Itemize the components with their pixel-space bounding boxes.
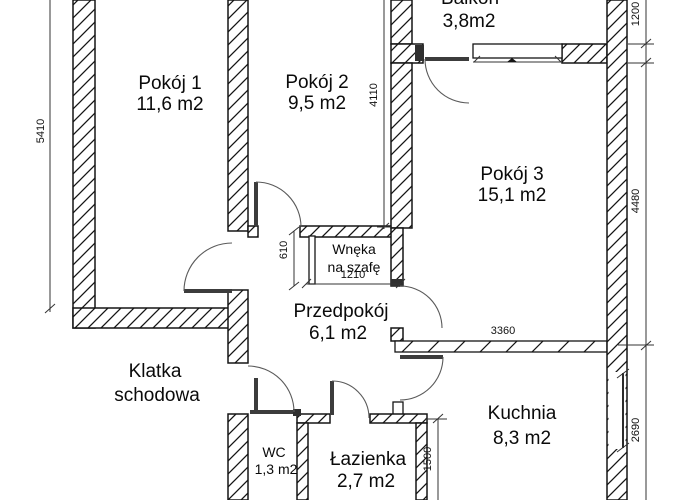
room-label-balkon: Balkon bbox=[441, 0, 499, 9]
dimension-pokoj2-depth: 4110 bbox=[368, 83, 380, 107]
room-label-pokoj3: Pokój 3 bbox=[480, 164, 543, 185]
room-area-balkon: 3,8m2 bbox=[443, 11, 496, 32]
wall-kuchnia-door-jamb bbox=[393, 402, 403, 415]
room-area-pokoj1: 11,6 m2 bbox=[136, 94, 203, 115]
room-label-klatka-line2: schodowa bbox=[114, 385, 200, 406]
room-label-wneka-line1: Wnęka bbox=[332, 241, 376, 257]
dimension-wneka-depth: 610 bbox=[278, 241, 290, 259]
floor-plan-svg: 5410 4110 1200 4480 2690 610 1210 1500 3… bbox=[0, 0, 700, 500]
balkon-door-jamb bbox=[415, 45, 424, 61]
room-area-pokoj3: 15,1 m2 bbox=[478, 185, 547, 206]
wall-klatka-top bbox=[73, 308, 233, 328]
wall-lazienka-top bbox=[370, 414, 427, 423]
wall-wneka-left bbox=[309, 236, 315, 284]
dimension-balkon-height: 1200 bbox=[630, 2, 642, 26]
dimension-pokoj3-depth: 4480 bbox=[630, 189, 642, 213]
room-label-lazienka: Łazienka bbox=[330, 449, 406, 470]
wall-pokoj3-door-stub bbox=[391, 328, 403, 341]
dimension-lazienka-depth: 1500 bbox=[422, 447, 434, 471]
wall-pokoj3-west-thin bbox=[391, 228, 403, 286]
wall-kuchnia-pokoj3 bbox=[395, 341, 607, 352]
room-label-klatka-line1: Klatka bbox=[129, 361, 182, 382]
wall-pokoj2-pokoj3 bbox=[391, 63, 412, 228]
wall-wc-west bbox=[228, 414, 248, 500]
room-label-pokoj2: Pokój 2 bbox=[285, 72, 348, 93]
room-area-wc: 1,3 m2 bbox=[255, 461, 298, 477]
dimension-kuchnia-wall: 3360 bbox=[491, 325, 515, 337]
room-area-lazienka: 2,7 m2 bbox=[337, 471, 395, 492]
floor-plan-page: 5410 4110 1200 4480 2690 610 1210 1500 3… bbox=[0, 0, 700, 500]
wall-wc-top-right bbox=[297, 414, 330, 423]
room-area-pokoj2: 9,5 m2 bbox=[288, 93, 346, 114]
room-label-wneka-line2: na szafę bbox=[328, 259, 381, 275]
wall-wc-lazienka bbox=[297, 423, 308, 500]
wall-pokoj1-pokoj2 bbox=[228, 0, 248, 231]
wall-pokoj2-pokoj3-top bbox=[391, 0, 412, 44]
dimension-kuchnia-window: 2690 bbox=[630, 418, 642, 442]
room-label-kuchnia: Kuchnia bbox=[488, 403, 557, 424]
wall-balkon-bottom-right bbox=[562, 44, 607, 63]
room-area-przedpokoj: 6,1 m2 bbox=[309, 323, 367, 344]
wall-pokoj2-bottom-stub bbox=[248, 226, 258, 237]
room-label-wc: WC bbox=[262, 444, 285, 460]
room-label-przedpokoj: Przedpokój bbox=[293, 301, 388, 322]
wall-przedpokoj-west-mid bbox=[228, 290, 248, 363]
dimension-left-wall: 5410 bbox=[35, 119, 47, 143]
room-label-pokoj1: Pokój 1 bbox=[138, 73, 201, 94]
room-area-kuchnia: 8,3 m2 bbox=[493, 428, 551, 449]
wall-left-outer bbox=[73, 0, 95, 328]
